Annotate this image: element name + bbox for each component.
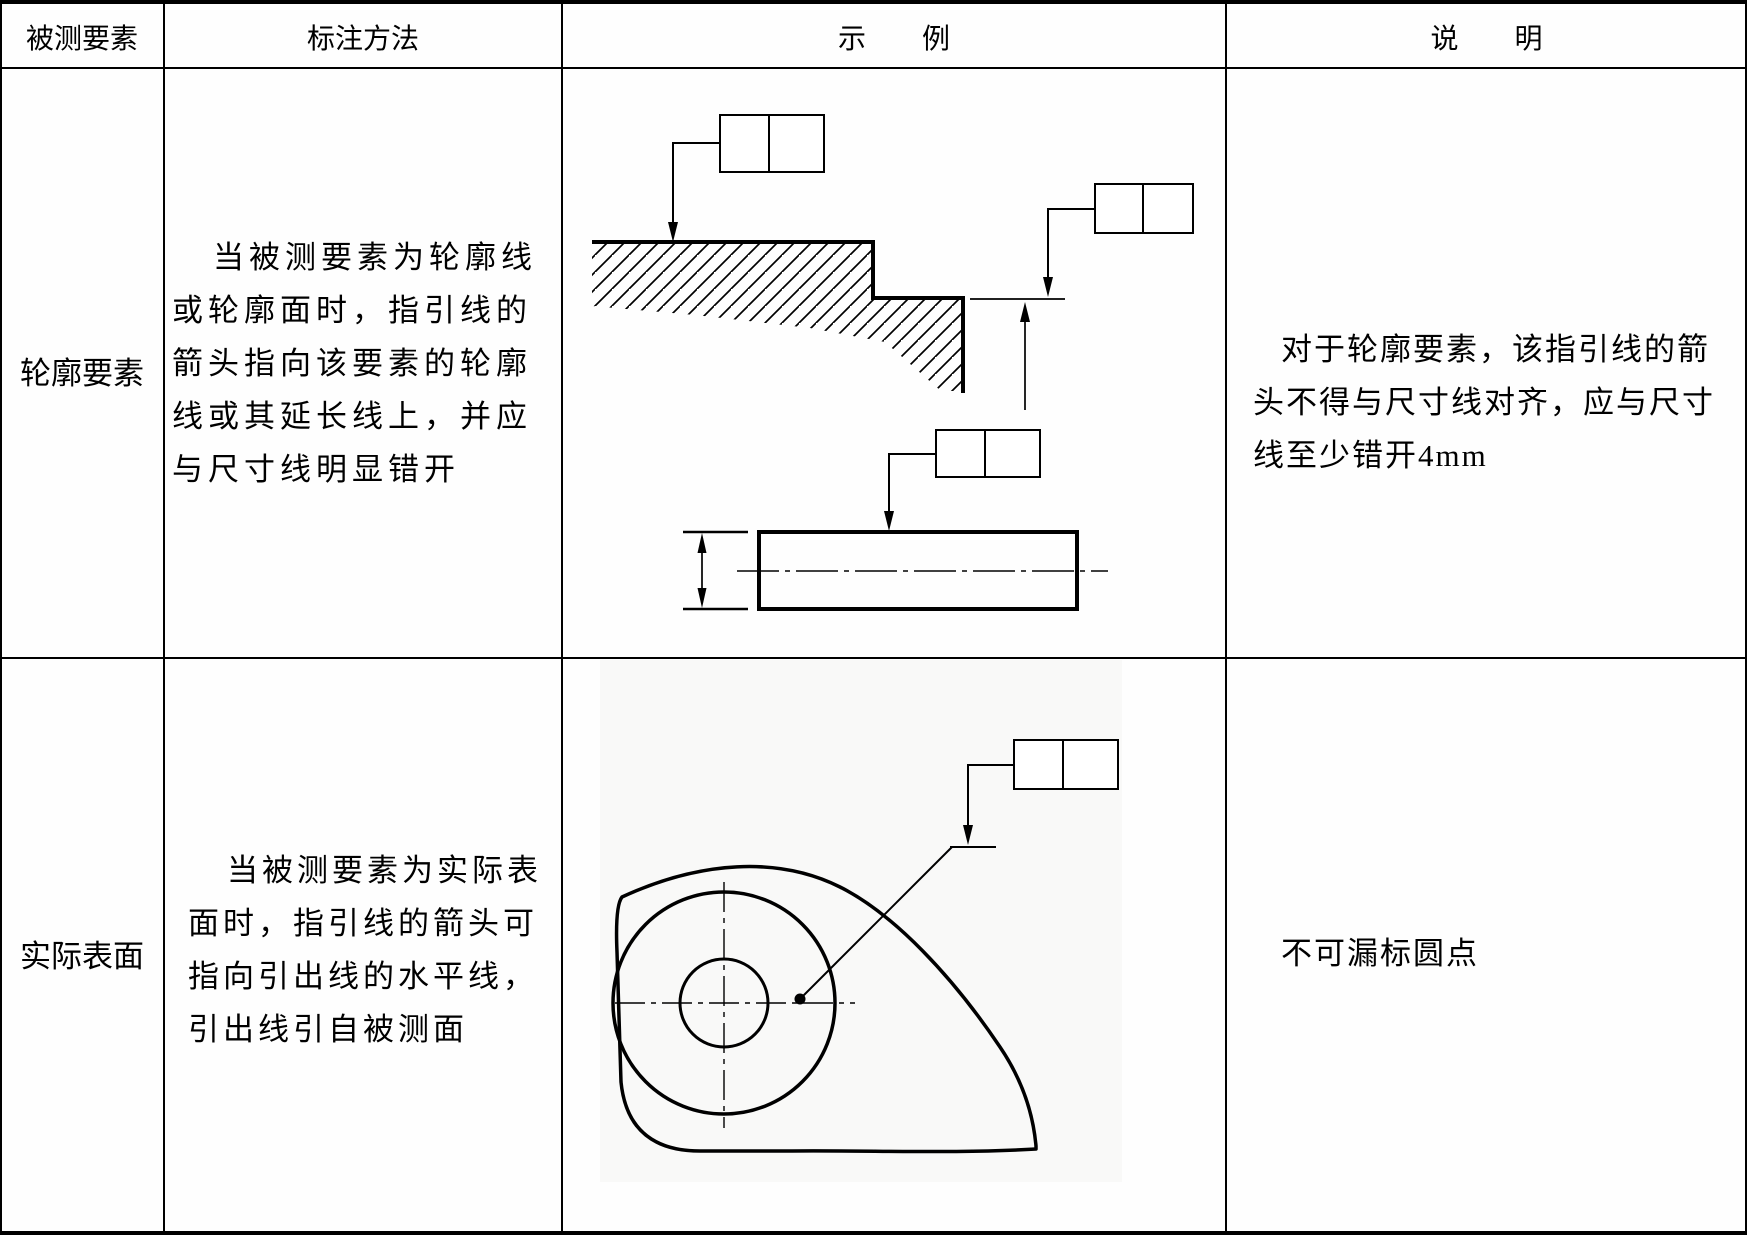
- method-line: 箭头指向该要素的轮廓: [172, 337, 537, 390]
- leader-line: [889, 454, 936, 513]
- method-line: 与尺寸线明显错开: [172, 443, 537, 496]
- column-separator: [561, 0, 563, 1235]
- arrowhead: [698, 588, 707, 608]
- tolerance-frame: [1095, 184, 1193, 233]
- note-line: 对于轮廓要素，该指引线的箭: [1253, 323, 1715, 376]
- column-separator: [163, 0, 165, 1235]
- method-line: 当被测要素为轮廓线: [172, 231, 537, 284]
- arrowhead: [1020, 302, 1030, 322]
- method-text-surface: 当被测要素为实际表 面时，指引线的箭头可 指向引出线的水平线， 引出线引自被测面: [188, 844, 542, 1056]
- surface-example-drawing: [600, 660, 1122, 1182]
- note-line: 头不得与尺寸线对齐，应与尺寸: [1253, 376, 1715, 429]
- method-line: 指向引出线的水平线，: [188, 950, 542, 1003]
- method-line: 面时，指引线的箭头可: [188, 897, 542, 950]
- row-label-actual-surface: 实际表面: [0, 931, 164, 976]
- tolerance-frame: [936, 430, 1040, 477]
- method-text-contour: 当被测要素为轮廓线 或轮廓面时，指引线的 箭头指向该要素的轮廓 线或其延长线上，…: [172, 231, 537, 496]
- method-line: 引出线引自被测面: [188, 1003, 542, 1056]
- hatch-region: [592, 244, 963, 391]
- tolerance-frame: [720, 115, 824, 172]
- arrowhead: [884, 511, 894, 531]
- arrowhead: [668, 222, 678, 242]
- header-explanation: 说 明: [1226, 0, 1747, 67]
- table-border-bottom: [0, 1231, 1747, 1235]
- method-line: 或轮廓面时，指引线的: [172, 284, 537, 337]
- method-line: 线或其延长线上，并应: [172, 390, 537, 443]
- standards-table-page: 被测要素 标注方法 示 例 说 明 轮廓要素 当被测要素为轮廓线 或轮廓面时，指…: [0, 0, 1747, 1235]
- plate-example-drawing: [683, 430, 1108, 609]
- column-separator: [1225, 0, 1227, 1235]
- method-line: 当被测要素为实际表: [188, 844, 542, 897]
- leader-line: [673, 143, 720, 224]
- contour-example-drawing: [592, 115, 1193, 410]
- arrowhead: [698, 533, 707, 553]
- leader-line: [1048, 209, 1095, 279]
- table-border-left: [0, 0, 2, 1235]
- tolerance-frame: [1014, 740, 1118, 789]
- header-example: 示 例: [562, 0, 1226, 67]
- surface-dot: [795, 994, 806, 1005]
- arrowhead: [1043, 277, 1053, 297]
- row-label-contour-element: 轮廓要素: [0, 348, 164, 393]
- note-text-surface: 不可漏标圆点: [1281, 928, 1479, 973]
- note-line: 线至少错开4mm: [1253, 429, 1715, 482]
- row-separator: [0, 657, 1747, 659]
- note-text-contour: 对于轮廓要素，该指引线的箭 头不得与尺寸线对齐，应与尺寸 线至少错开4mm: [1253, 323, 1715, 482]
- header-separator: [0, 67, 1747, 69]
- header-annotation-method: 标注方法: [164, 0, 562, 67]
- header-measured-element: 被测要素: [0, 0, 164, 67]
